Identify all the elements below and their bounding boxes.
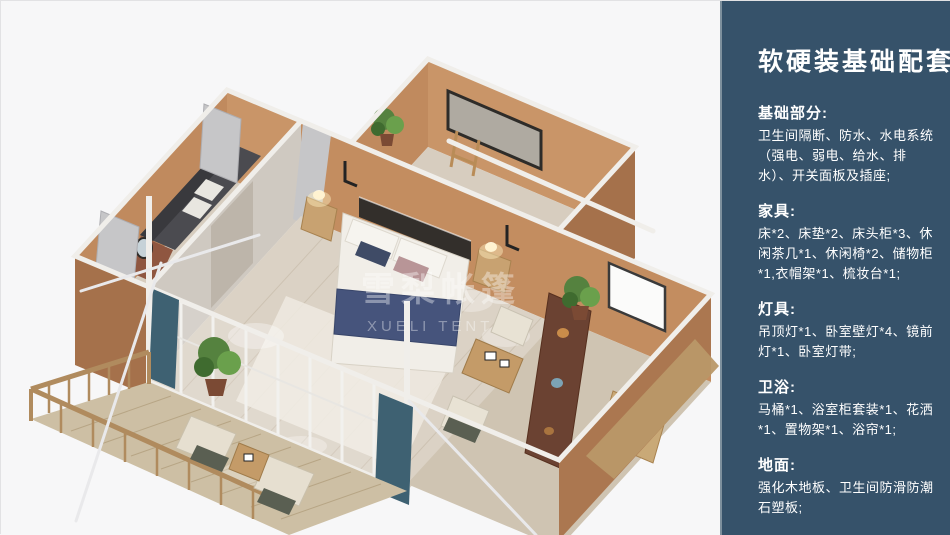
svg-text:雪梨帐篷: 雪梨帐篷 [361, 271, 521, 309]
section-title: 卫浴: [758, 376, 936, 397]
panel-title: 软硬装基础配套 [758, 47, 936, 78]
section-title: 灯具: [758, 298, 936, 319]
section-lighting: 灯具: 吊顶灯*1、卧室壁灯*4、镜前灯*1、卧室灯带; [758, 298, 936, 362]
svg-text:XUELI TENT: XUELI TENT [367, 318, 493, 335]
section-flooring: 地面: 强化木地板、卫生间防滑防潮石塑板; [758, 454, 936, 518]
info-panel: 软硬装基础配套 基础部分: 卫生间隔断、防水、水电系统（强电、弱电、给水、排水）… [720, 1, 950, 535]
section-body: 强化木地板、卫生间防滑防潮石塑板; [758, 478, 936, 518]
section-body: 吊顶灯*1、卧室壁灯*4、镜前灯*1、卧室灯带; [758, 322, 936, 362]
floorplan-illustration: 雪梨帐篷 XUELI TENT [1, 1, 721, 535]
floorplan-canvas: 雪梨帐篷 XUELI TENT [1, 1, 721, 535]
section-title: 地面: [758, 454, 936, 475]
section-basics: 基础部分: 卫生间隔断、防水、水电系统（强电、弱电、给水、排水）、开关面板及插座… [758, 102, 936, 186]
page: 雪梨帐篷 XUELI TENT 软硬装基础配套 基础部分: 卫生间隔断、防水、水… [0, 0, 950, 534]
section-body: 卫生间隔断、防水、水电系统（强电、弱电、给水、排水）、开关面板及插座; [758, 126, 936, 186]
section-body: 床*2、床垫*2、床头柜*3、休闲茶几*1、休闲椅*2、储物柜*1,衣帽架*1、… [758, 224, 936, 284]
section-body: 马桶*1、浴室柜套装*1、花洒*1、置物架*1、浴帘*1; [758, 400, 936, 440]
section-title: 家具: [758, 200, 936, 221]
section-furniture: 家具: 床*2、床垫*2、床头柜*3、休闲茶几*1、休闲椅*2、储物柜*1,衣帽… [758, 200, 936, 284]
teal-curtain [149, 289, 179, 389]
section-title: 基础部分: [758, 102, 936, 123]
section-bathroom: 卫浴: 马桶*1、浴室柜套装*1、花洒*1、置物架*1、浴帘*1; [758, 376, 936, 440]
